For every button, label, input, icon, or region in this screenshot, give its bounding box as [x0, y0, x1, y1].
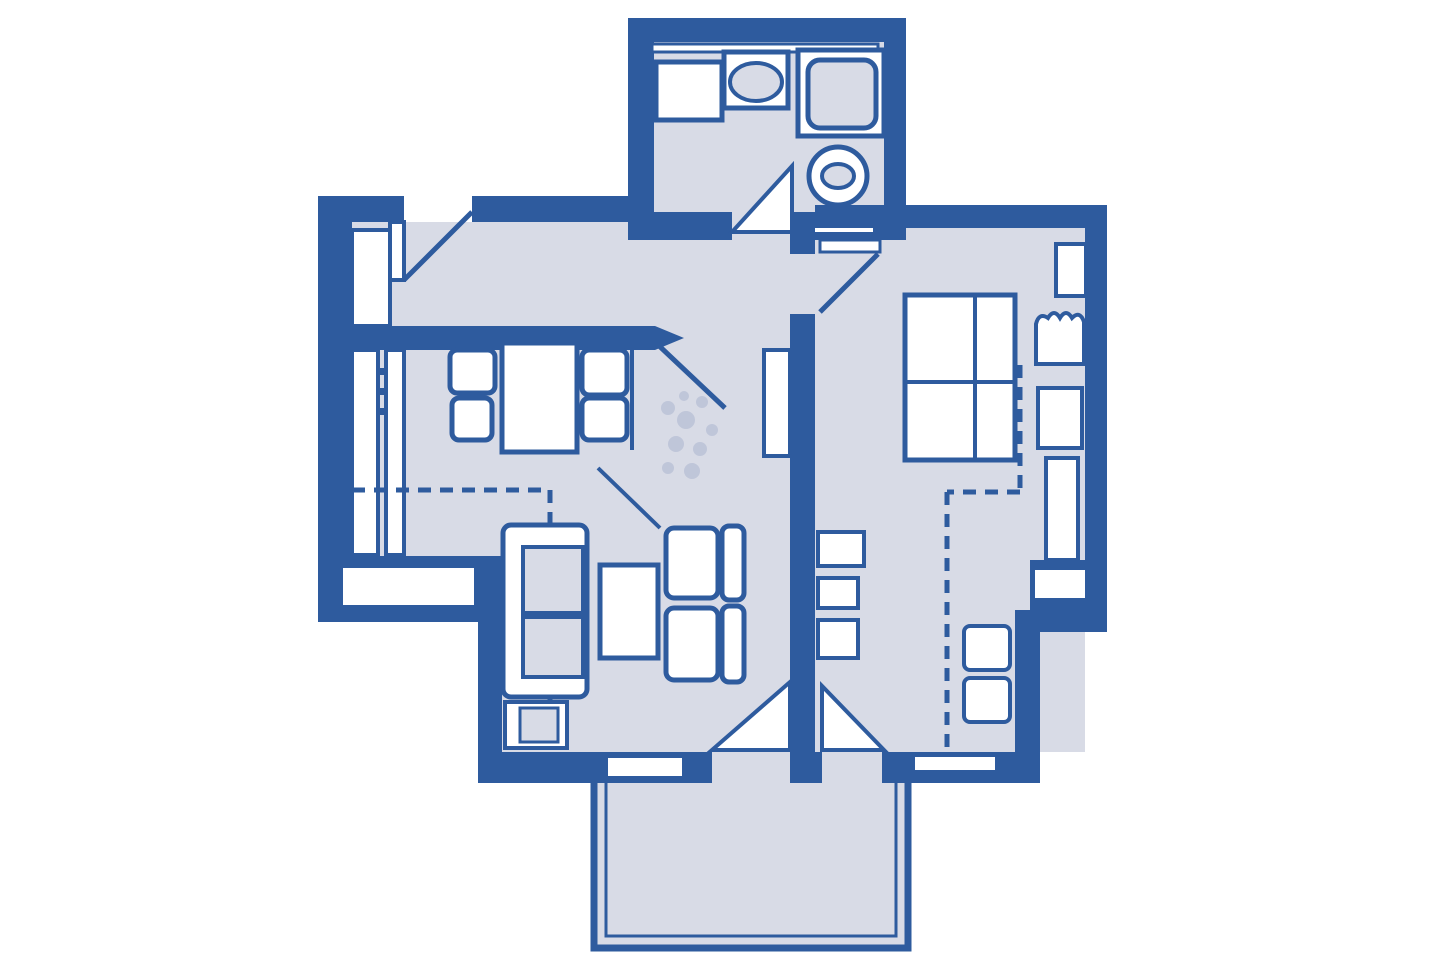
- ottoman: [505, 702, 567, 748]
- window: [608, 758, 682, 776]
- shower: [798, 50, 884, 136]
- nightstand: [1056, 244, 1086, 296]
- washbasin: [809, 147, 867, 205]
- wardrobe: [1046, 458, 1078, 560]
- vanity: [656, 62, 722, 120]
- coffee-table: [600, 565, 658, 658]
- wall: [318, 196, 352, 556]
- wall: [815, 205, 1107, 228]
- wall: [790, 752, 822, 783]
- toilet: [724, 52, 788, 108]
- wall: [790, 314, 815, 752]
- wall: [628, 18, 654, 240]
- wall-shelf: [764, 350, 790, 456]
- kitchen-counter: [352, 350, 404, 555]
- stool: [964, 678, 1010, 722]
- bedroom-balcony-threshold: [822, 752, 882, 783]
- floor-plan-drawing: [0, 0, 1440, 959]
- wall-niche-shelf: [1035, 570, 1085, 598]
- window: [343, 568, 474, 605]
- stool: [964, 626, 1010, 670]
- closet: [352, 230, 390, 326]
- wall: [628, 18, 906, 42]
- wall: [628, 212, 732, 240]
- bedside-chair: [1036, 313, 1084, 364]
- sofa: [503, 525, 587, 697]
- chest-of-drawers: [818, 532, 864, 658]
- bedroom-door-threshold: [790, 252, 815, 314]
- armchair: [666, 526, 744, 600]
- balcony-floor: [594, 783, 908, 948]
- dining-chair: [450, 350, 495, 393]
- nightstand: [1038, 388, 1082, 448]
- window: [915, 757, 995, 770]
- armchair: [666, 606, 744, 682]
- dining-table: [502, 343, 577, 452]
- room-balcony: [594, 783, 908, 948]
- living-balcony-threshold: [712, 752, 790, 783]
- wall: [478, 556, 502, 783]
- double-bed: [905, 295, 1015, 460]
- wall: [330, 326, 655, 350]
- floor-plan-page: [0, 0, 1440, 959]
- dining-chair: [452, 398, 492, 440]
- dining-chair: [582, 350, 627, 395]
- dining-chair: [582, 398, 627, 440]
- wall: [1015, 610, 1040, 783]
- wall: [472, 196, 628, 222]
